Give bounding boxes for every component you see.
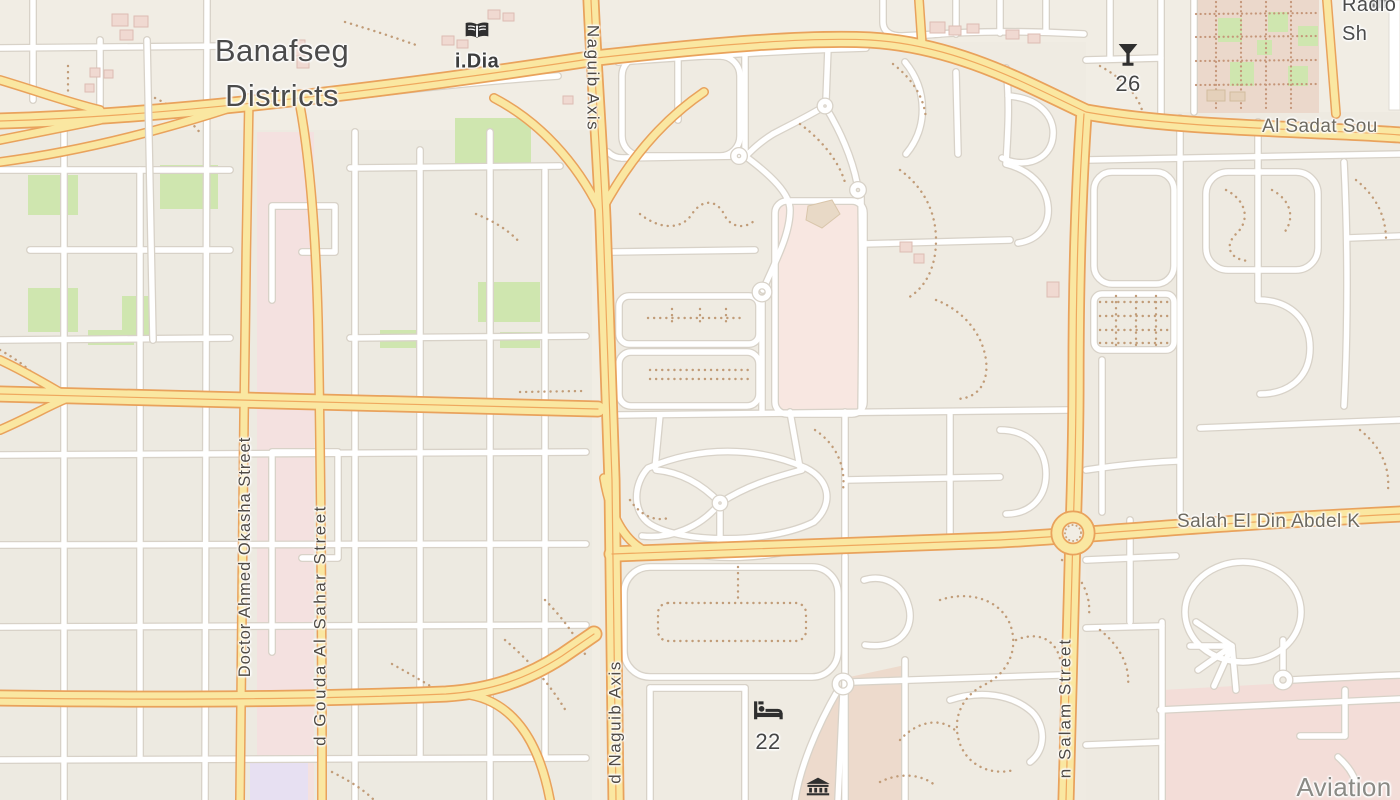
road-label-al-sadat: Al Sadat Sou [1262, 113, 1378, 141]
library-poi [464, 22, 490, 41]
library-poi-label: i.Dia [455, 48, 499, 77]
museum-poi [804, 777, 832, 796]
roundabout [1057, 517, 1089, 549]
map-basemap [0, 0, 1400, 800]
landuse-label-aviation: Aviation [1296, 769, 1391, 800]
bed-icon [753, 700, 783, 721]
cocktail-icon [1117, 43, 1139, 68]
road-label-naguib-axis-bottom: d Naguib Axis [604, 660, 629, 783]
hotel-poi [753, 700, 783, 721]
place-label-radio-shack: Radio Sh [1342, 0, 1400, 49]
street-label-salam: n Salam Street [1054, 638, 1079, 778]
bar-poi [1117, 43, 1139, 68]
place-label-banafseg: Banafseg Districts [215, 29, 349, 119]
map-canvas[interactable]: Banafseg Districts Radio Sh Al Sadat Sou… [0, 0, 1400, 800]
road-label-naguib-axis-top: Naguib Axis [580, 25, 605, 131]
road-label-salah-el-din: Salah El Din Abdel K [1177, 508, 1360, 536]
street-label-gouda-sahar: d Gouda Al Sahar Street [309, 504, 334, 746]
bar-poi-label: 26 [1115, 68, 1140, 100]
hotel-poi-label: 22 [755, 726, 780, 758]
street-label-okasha: Doctor Ahmed Okasha Street [234, 437, 258, 678]
purple-area [250, 760, 308, 800]
open-book-icon [464, 22, 490, 41]
museum-icon [804, 777, 832, 796]
